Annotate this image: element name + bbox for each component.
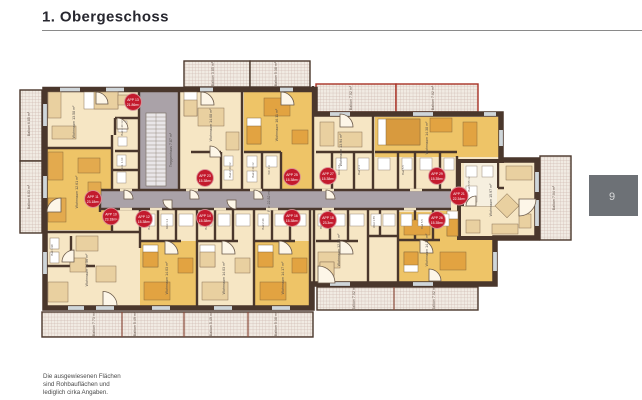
svg-text:APP 23: APP 23 — [199, 174, 211, 178]
svg-text:Wohnraum 15.97 m²: Wohnraum 15.97 m² — [489, 183, 493, 216]
svg-text:Wohnraum 12.61 m²: Wohnraum 12.61 m² — [75, 175, 79, 208]
svg-text:Wohnraum 14.03 m²: Wohnraum 14.03 m² — [165, 261, 169, 294]
svg-text:Bad 5.55 m²: Bad 5.55 m² — [467, 176, 471, 191]
svg-text:Balkon 5.38 m²: Balkon 5.38 m² — [274, 311, 278, 336]
svg-text:15.35m²: 15.35m² — [431, 221, 444, 225]
svg-text:Wohnraum 14.17 m²: Wohnraum 14.17 m² — [281, 261, 285, 294]
svg-text:21.86m²: 21.86m² — [127, 103, 140, 107]
svg-text:15.38m²: 15.38m² — [286, 178, 299, 182]
svg-text:Balkon 6.03 m²: Balkon 6.03 m² — [27, 184, 31, 209]
svg-text:APP 10: APP 10 — [105, 213, 117, 217]
svg-text:Wohnraum 16.11 m²: Wohnraum 16.11 m² — [275, 108, 279, 141]
svg-text:Abst. 1.10: Abst. 1.10 — [120, 157, 124, 170]
svg-text:Bad 2.36 m²: Bad 2.36 m² — [228, 162, 232, 177]
svg-text:Wohnraum 14.18 m²: Wohnraum 14.18 m² — [425, 233, 429, 266]
svg-text:Bad 2.30 m²: Bad 2.30 m² — [120, 120, 124, 135]
svg-text:APP 25: APP 25 — [286, 173, 298, 177]
svg-text:Die ausgewiesenen Flächen: Die ausgewiesenen Flächen — [43, 373, 121, 380]
svg-text:Wohnraum 14.03 m²: Wohnraum 14.03 m² — [222, 261, 226, 294]
svg-text:Abst 1.1: Abst 1.1 — [165, 218, 169, 229]
svg-text:Balkon 5.49 m²: Balkon 5.49 m² — [133, 311, 137, 336]
svg-text:APP 14: APP 14 — [199, 214, 211, 218]
svg-text:Wohnraum 14.56 m²: Wohnraum 14.56 m² — [85, 253, 89, 286]
svg-text:Bad 2.3: Bad 2.3 — [357, 165, 361, 175]
svg-text:15.35m²: 15.35m² — [431, 177, 444, 181]
svg-text:APP 26: APP 26 — [431, 216, 443, 220]
svg-text:APP 13: APP 13 — [127, 98, 139, 102]
svg-text:APP 16: APP 16 — [286, 214, 298, 218]
svg-text:Balkon 7.04 m²: Balkon 7.04 m² — [552, 185, 556, 210]
svg-text:APP 11: APP 11 — [87, 195, 98, 199]
svg-text:23.3m²: 23.3m² — [323, 221, 334, 225]
svg-text:Balkon 7.02 m²: Balkon 7.02 m² — [352, 285, 356, 310]
svg-text:Wohnraum 14.08 m²: Wohnraum 14.08 m² — [209, 108, 213, 141]
svg-text:APP 18: APP 18 — [322, 216, 334, 220]
svg-text:23.18m²: 23.18m² — [105, 217, 118, 221]
svg-text:Balkon 7.02 m²: Balkon 7.02 m² — [432, 285, 436, 310]
svg-text:APP 21: APP 21 — [453, 192, 465, 196]
svg-text:Bad 5.5: Bad 5.5 — [401, 165, 405, 175]
svg-text:Balkon 7.02 m²: Balkon 7.02 m² — [349, 85, 353, 110]
svg-text:9: 9 — [609, 191, 615, 203]
svg-text:15.38m²: 15.38m² — [286, 219, 299, 223]
svg-text:Wohnraum 13.94 m²: Wohnraum 13.94 m² — [339, 133, 343, 166]
svg-text:Bad 2.36: Bad 2.36 — [261, 218, 265, 230]
svg-text:Balkon 5.38 m²: Balkon 5.38 m² — [274, 61, 278, 86]
svg-text:Abst 1.5: Abst 1.5 — [337, 164, 341, 175]
svg-text:Balkon 3.85 m²: Balkon 3.85 m² — [211, 61, 215, 86]
svg-text:lediglich cirka Angaben.: lediglich cirka Angaben. — [43, 389, 108, 396]
svg-text:Bad 1.98: Bad 1.98 — [50, 244, 54, 256]
svg-text:15.38m²: 15.38m² — [138, 220, 151, 224]
svg-text:Bad 2.36 m²: Bad 2.36 m² — [251, 162, 255, 177]
svg-text:APP 29: APP 29 — [431, 172, 443, 176]
svg-text:Wohnraum 13.58 m²: Wohnraum 13.58 m² — [72, 105, 76, 138]
svg-text:Balkon 7.73 m²: Balkon 7.73 m² — [92, 311, 96, 336]
svg-text:APP 12: APP 12 — [138, 215, 150, 219]
svg-text:Wohnraum 14.38 m²: Wohnraum 14.38 m² — [425, 121, 429, 154]
svg-text:1. Obergeschoss: 1. Obergeschoss — [42, 9, 169, 26]
svg-text:WC 2.3: WC 2.3 — [267, 165, 271, 175]
svg-text:Balkon 6.85 m²: Balkon 6.85 m² — [27, 111, 31, 136]
svg-text:Balkon 5.49 m²: Balkon 5.49 m² — [209, 311, 213, 336]
svg-text:15.38m²: 15.38m² — [199, 179, 212, 183]
svg-text:23.18m²: 23.18m² — [87, 200, 100, 204]
svg-text:15.38m²: 15.38m² — [199, 219, 212, 223]
svg-text:Wohnraum 12.54 m²: Wohnraum 12.54 m² — [337, 233, 341, 266]
svg-text:APP 27: APP 27 — [322, 172, 334, 176]
svg-text:Abst 1.55: Abst 1.55 — [372, 216, 376, 228]
svg-text:15.38m²: 15.38m² — [322, 177, 335, 181]
svg-text:22.34m²: 22.34m² — [453, 197, 466, 201]
svg-text:Bad 5.5: Bad 5.5 — [420, 219, 424, 229]
svg-text:Treppenhaus 7.87 m²: Treppenhaus 7.87 m² — [169, 132, 173, 167]
svg-text:sind Rohbauflächen und: sind Rohbauflächen und — [43, 381, 110, 388]
svg-text:Balkon 7.02 m²: Balkon 7.02 m² — [431, 85, 435, 110]
